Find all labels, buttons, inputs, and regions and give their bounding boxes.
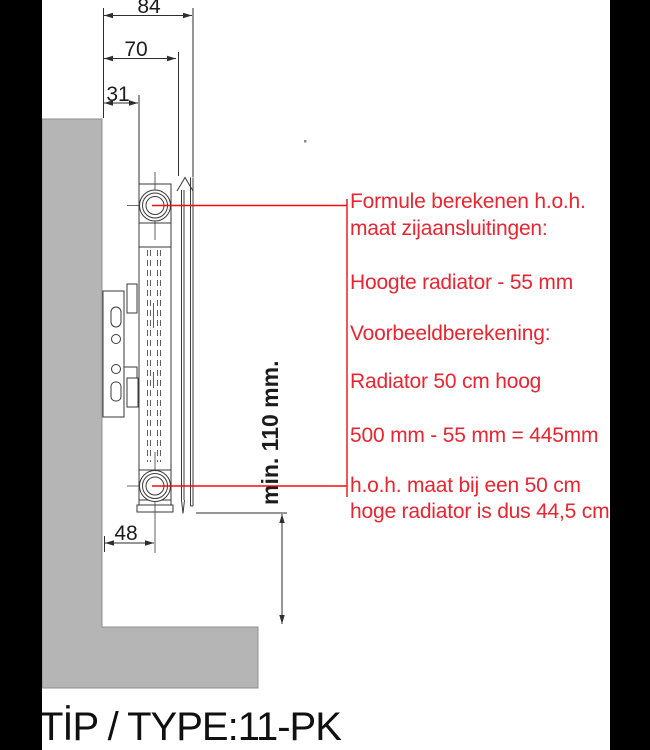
annotation-line: Radiator 50 cm hoog: [350, 371, 541, 393]
annotation-line: hoge radiator is dus 44,5 cm: [350, 501, 609, 523]
arrow-70-left: [104, 56, 113, 61]
wall-bracket: [103, 284, 138, 417]
type-label: TİP / TYPE:11-PK: [39, 705, 341, 750]
front-panel: [191, 178, 194, 507]
scan-border-left: [0, 0, 42, 750]
dim-label-48: 48: [114, 522, 137, 545]
annotation-line: 500 mm - 55 mm = 445mm: [350, 425, 598, 447]
annotation-line: Voorbeeldberekening:: [350, 323, 550, 345]
radiator-panel: [127, 172, 193, 553]
arrow-84-right: [183, 13, 192, 18]
annotation-line: maat zijaansluitingen:: [350, 218, 548, 240]
dim-label-31: 31: [106, 83, 129, 106]
annotation-line: h.o.h. maat bij een 50 cm: [350, 475, 581, 497]
bracket-upper-hook: [127, 284, 137, 313]
arrow-31-right: [129, 100, 138, 105]
bracket-step: [124, 367, 137, 378]
dim-label-70: 70: [124, 38, 147, 61]
dim-label-min-110: min. 110 mm.: [257, 361, 283, 505]
speck: [304, 140, 307, 143]
technical-drawing: 84 70 31 48 min. 110 mm.: [0, 0, 650, 750]
arrow-48-left: [105, 540, 114, 545]
arrow-min110-down: [279, 615, 284, 624]
arrow-48-right: [145, 540, 154, 545]
scan-border-right: [610, 0, 650, 750]
arrow-84-left: [104, 13, 113, 18]
bracket-lower-hook: [127, 378, 138, 407]
annotation-line: Formule berekenen h.o.h.: [350, 191, 586, 213]
radiator-installation-diagram: 84 70 31 48 min. 110 mm. Formule bereken…: [0, 0, 650, 750]
annotation-line: Hoogte radiator - 55 mm: [350, 272, 573, 294]
arrow-min110-up: [279, 514, 284, 523]
dim-label-84: 84: [137, 0, 161, 18]
arrow-70-right: [167, 56, 176, 61]
